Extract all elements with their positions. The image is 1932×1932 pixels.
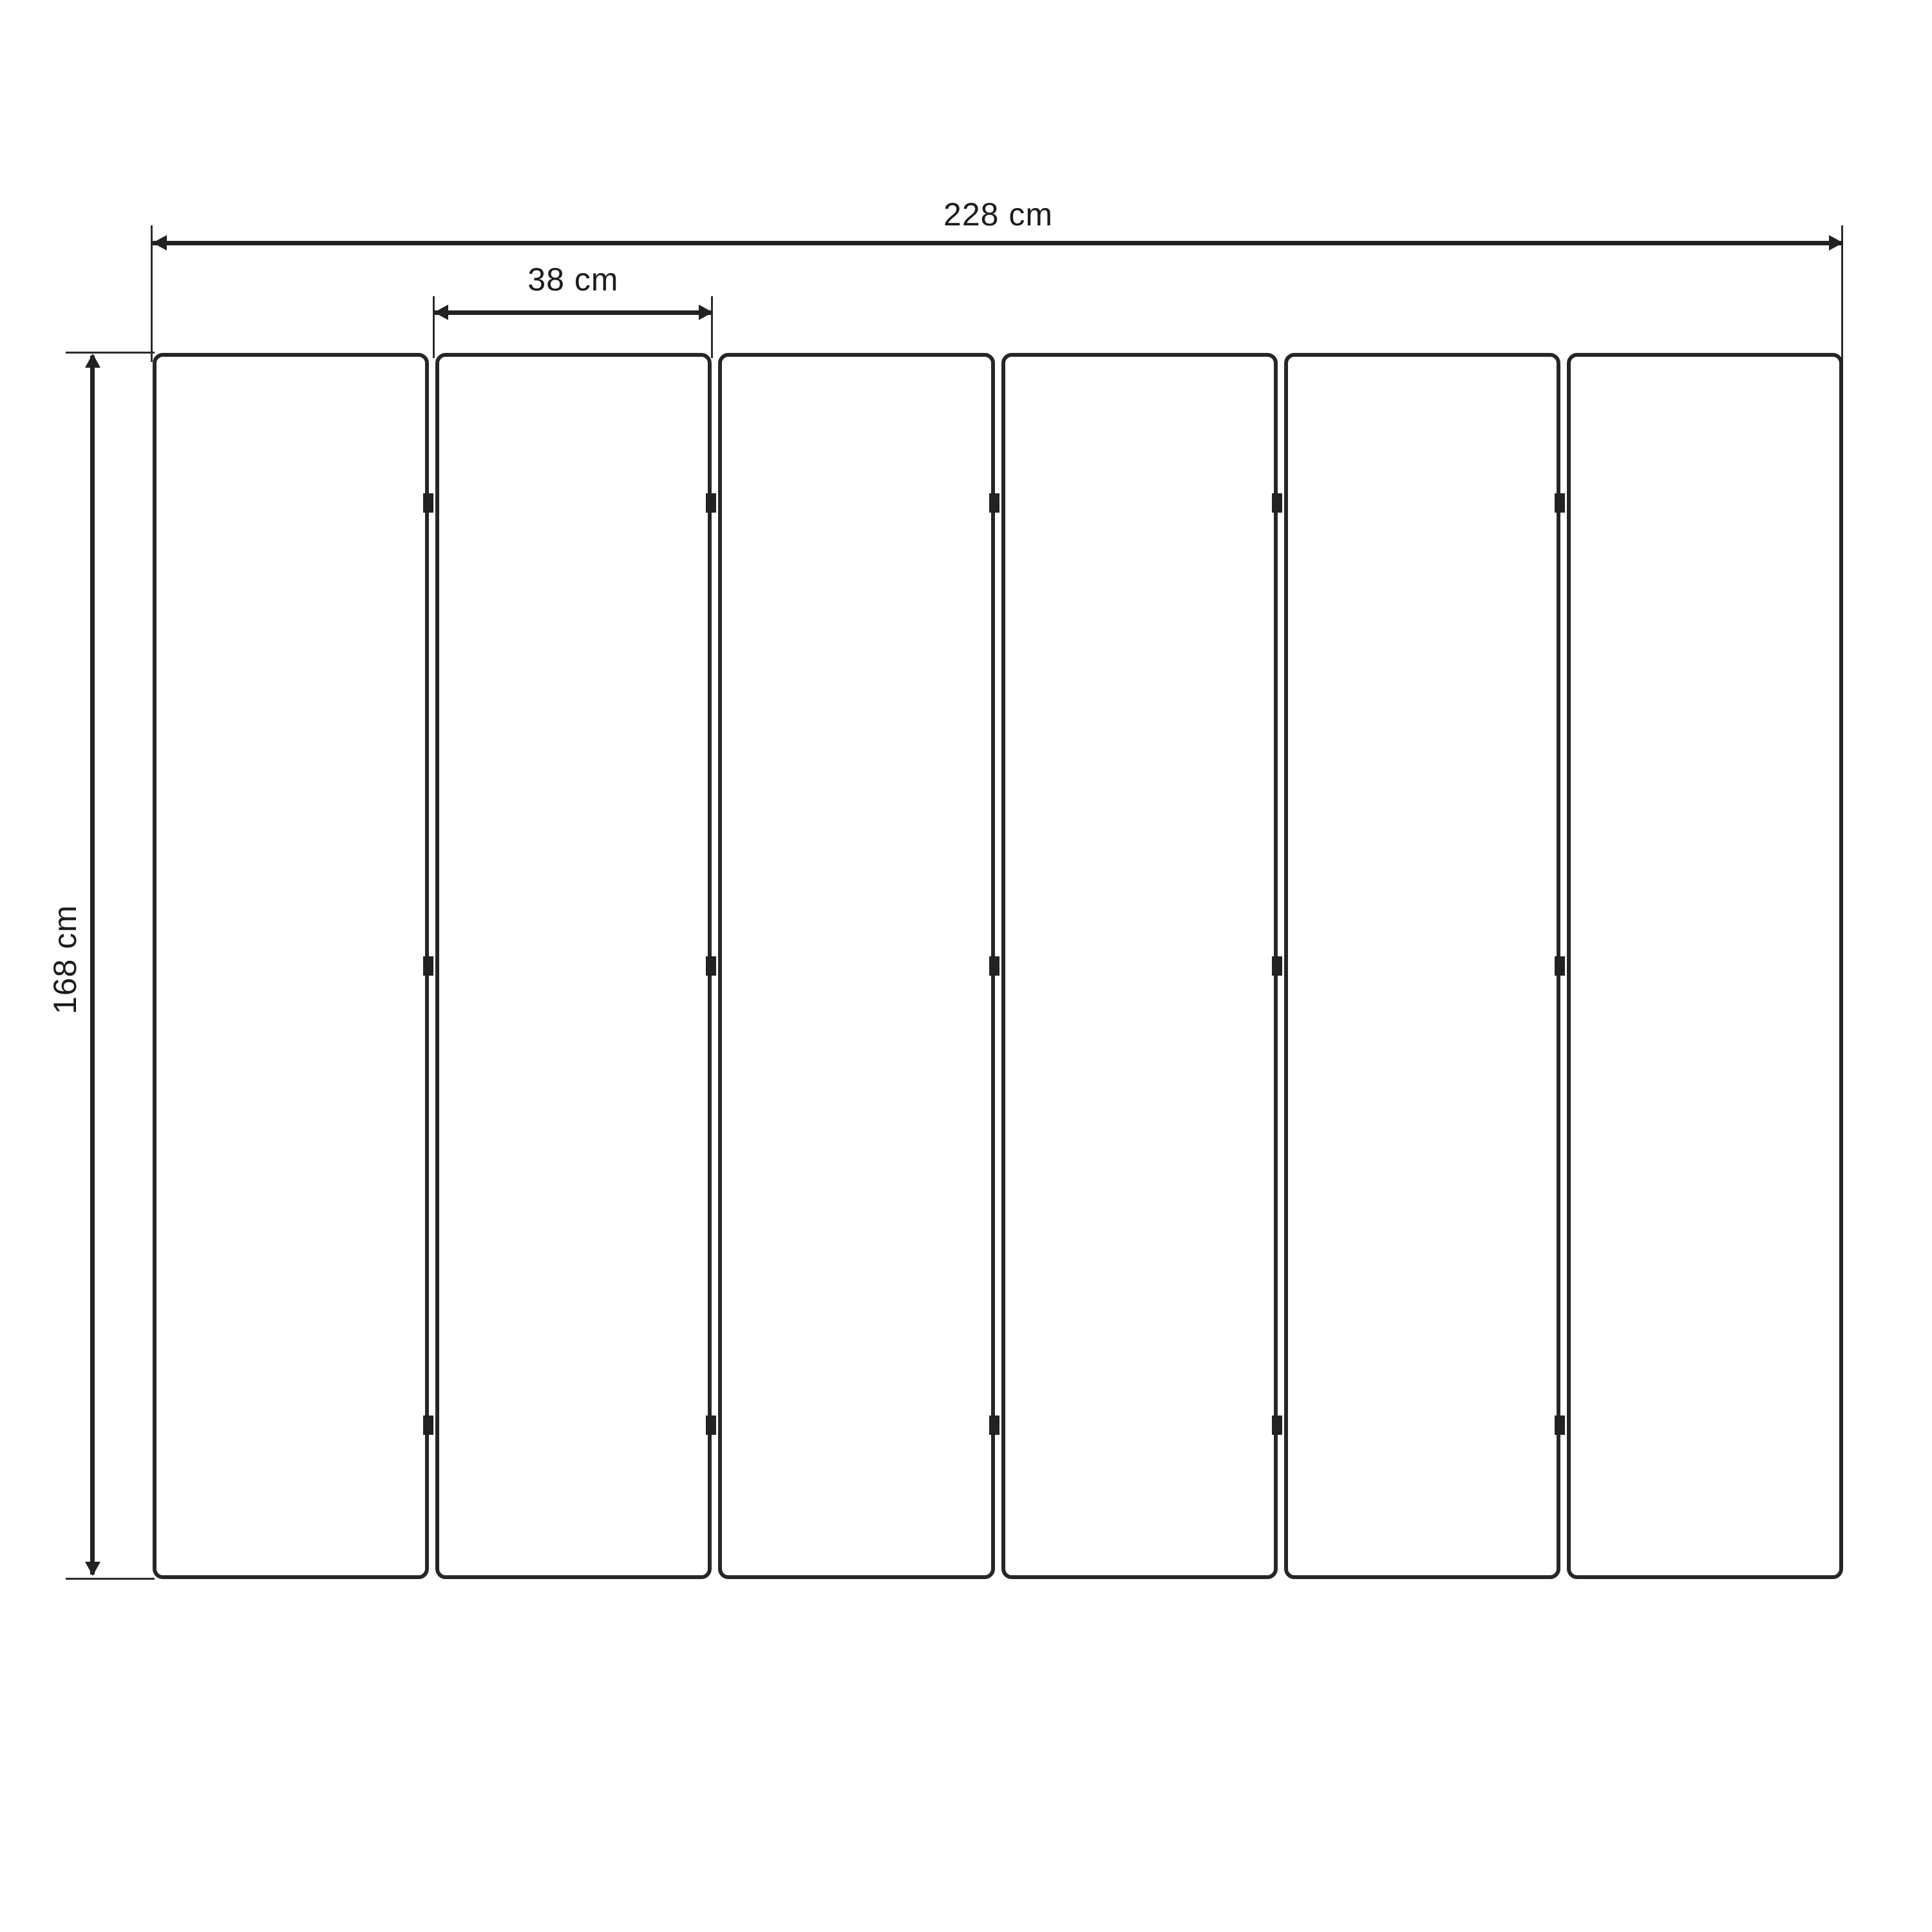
- extension-line-height-bottom: [66, 1578, 155, 1580]
- panel: [435, 353, 712, 1579]
- arrowhead-left-icon: [434, 305, 448, 320]
- extension-line-height-top: [66, 352, 155, 354]
- hinge-mark-middle: [423, 956, 433, 976]
- hinge-mark-middle: [989, 956, 999, 976]
- hinge-mark-bottom: [1272, 1416, 1282, 1435]
- height-label: 168 cm: [46, 905, 84, 1014]
- arrowhead-up-icon: [85, 354, 100, 368]
- total-width-label: 228 cm: [943, 196, 1053, 233]
- dimension-line-panel-width: [434, 310, 713, 315]
- hinge-mark-middle: [1555, 956, 1565, 976]
- panel: [718, 353, 994, 1579]
- hinge-mark-bottom: [989, 1416, 999, 1435]
- hinge-mark-bottom: [423, 1416, 433, 1435]
- hinge-mark-top: [1272, 493, 1282, 513]
- hinge-mark-bottom: [1555, 1416, 1565, 1435]
- hinge-mark-top: [423, 493, 433, 513]
- panel: [1567, 353, 1843, 1579]
- arrowhead-left-icon: [153, 235, 167, 251]
- arrowhead-right-icon: [699, 305, 713, 320]
- arrowhead-down-icon: [85, 1562, 100, 1576]
- hinge-mark-top: [706, 493, 716, 513]
- hinge-mark-middle: [706, 956, 716, 976]
- arrowhead-right-icon: [1829, 235, 1843, 251]
- hinge-mark-middle: [1272, 956, 1282, 976]
- panel-width-label: 38 cm: [527, 261, 618, 298]
- hinge-mark-bottom: [706, 1416, 716, 1435]
- dimension-line-total-width: [153, 241, 1843, 245]
- panel: [153, 353, 429, 1579]
- dimension-line-height: [90, 355, 95, 1575]
- hinge-mark-top: [1555, 493, 1565, 513]
- hinge-mark-top: [989, 493, 999, 513]
- panel: [1001, 353, 1278, 1579]
- panel: [1284, 353, 1560, 1579]
- panels-row: [153, 353, 1843, 1579]
- dimension-drawing-canvas: 228 cm 38 cm 168 cm: [0, 0, 1932, 1932]
